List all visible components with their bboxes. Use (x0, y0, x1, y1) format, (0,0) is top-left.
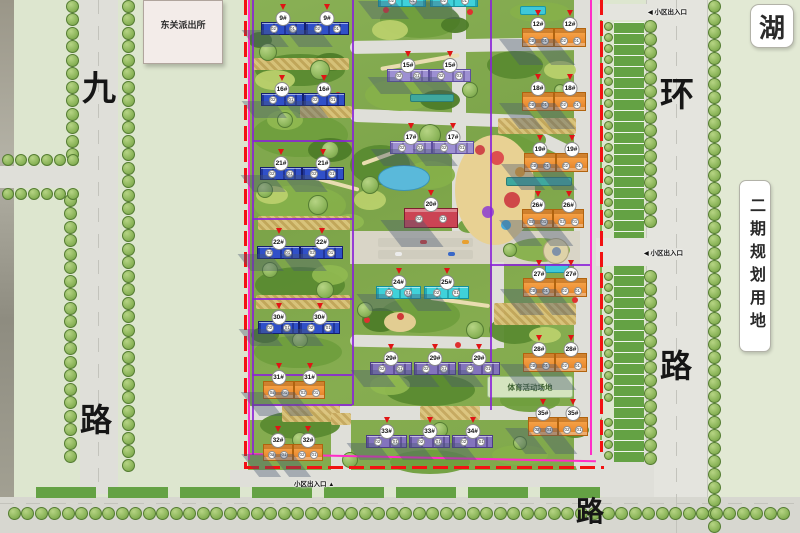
entrance-label: 小区出入口 ▲ (294, 478, 334, 488)
entrance-arrow-icon: ▲ (328, 482, 334, 488)
entrance-text: 小区出入口 (294, 481, 327, 488)
entrance-text: 小区出入口 (654, 9, 687, 16)
entrance-label: ◀ 小区出入口 (648, 6, 687, 16)
entrance-text: 小区出入口 (650, 250, 683, 257)
entrance-labels-layer: ◀ 小区出入口◀ 小区出入口小区出入口 ▲ (0, 0, 800, 533)
entrance-label: ◀ 小区出入口 (644, 247, 683, 257)
entrance-arrow-icon: ◀ (648, 10, 653, 16)
entrance-arrow-icon: ◀ (644, 251, 649, 257)
master-plan-map: 02019#02019#020116#020116#020121#020121#… (0, 0, 800, 533)
